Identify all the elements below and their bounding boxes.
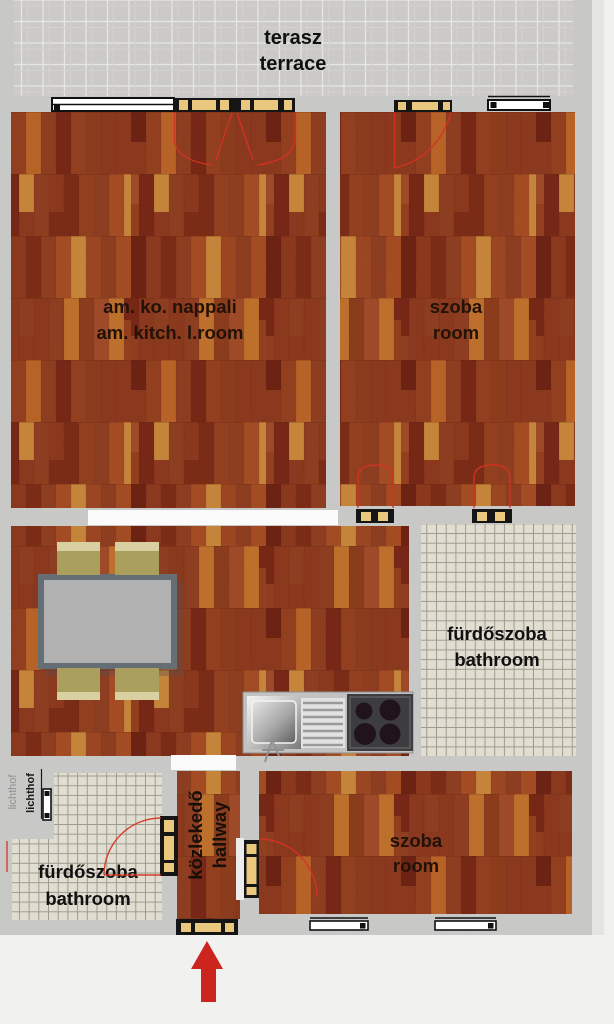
svg-text:lichthof: lichthof <box>25 773 37 813</box>
svg-text:lichthof: lichthof <box>7 774 19 810</box>
